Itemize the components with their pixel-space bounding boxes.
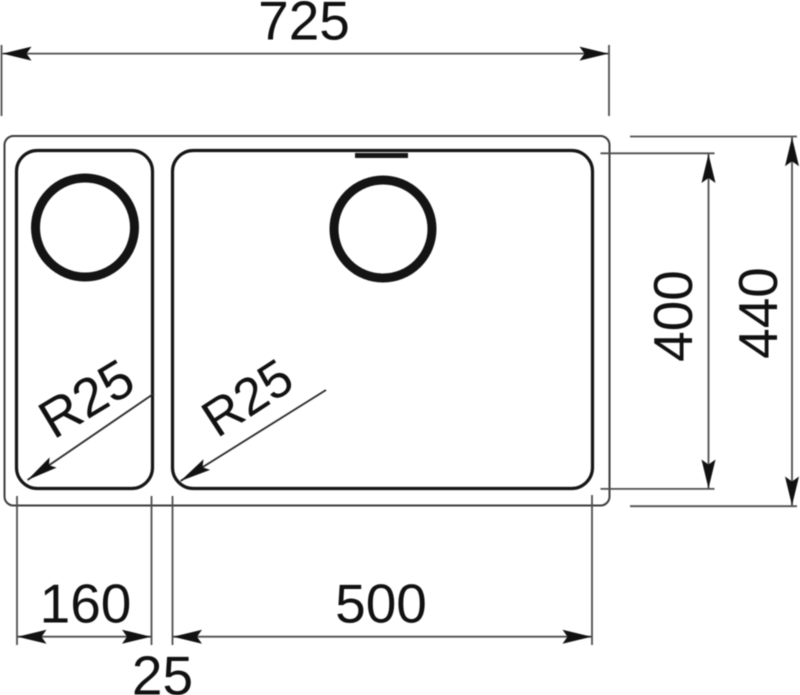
svg-text:400: 400 bbox=[642, 270, 704, 362]
svg-text:440: 440 bbox=[727, 267, 789, 359]
svg-text:725: 725 bbox=[258, 0, 350, 52]
svg-text:25: 25 bbox=[132, 645, 193, 695]
svg-text:160: 160 bbox=[40, 573, 132, 635]
svg-text:500: 500 bbox=[335, 573, 427, 635]
